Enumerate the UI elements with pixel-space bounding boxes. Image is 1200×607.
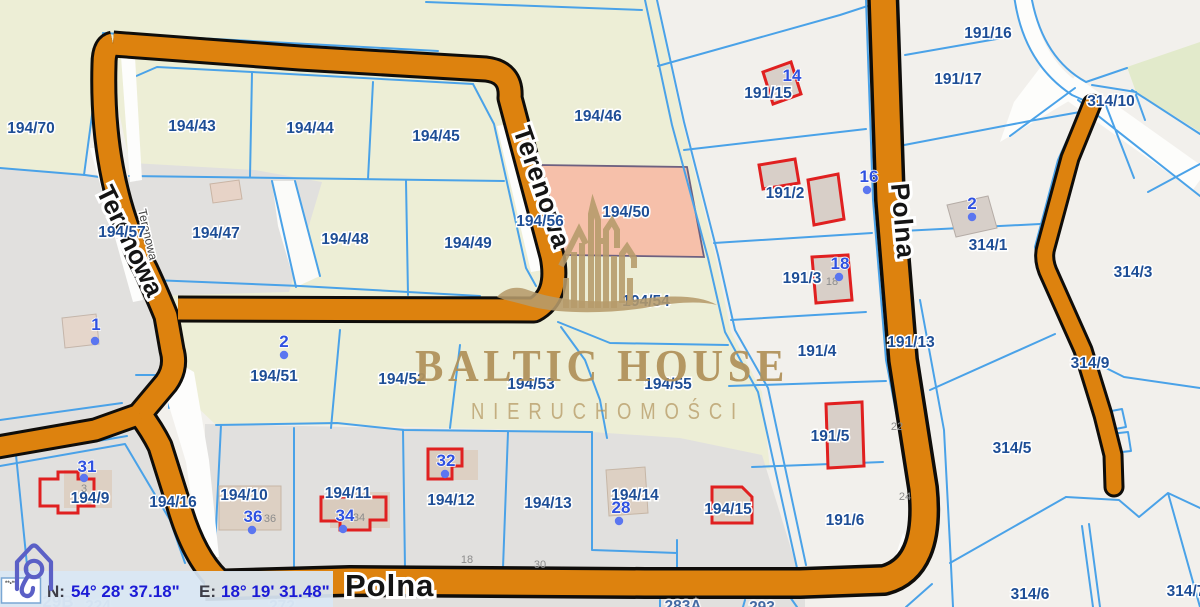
- svg-text:194/46: 194/46: [574, 108, 622, 125]
- svg-text:194/44: 194/44: [286, 120, 334, 137]
- svg-text:194/45: 194/45: [412, 128, 460, 145]
- svg-text:16: 16: [860, 167, 879, 186]
- svg-text:18: 18: [461, 554, 473, 566]
- svg-text:194/9: 194/9: [71, 490, 110, 507]
- svg-text:314/10: 314/10: [1087, 93, 1134, 110]
- svg-text:28: 28: [612, 498, 631, 517]
- svg-text:14: 14: [783, 66, 802, 85]
- svg-text:194/13: 194/13: [524, 495, 572, 512]
- svg-text:191/16: 191/16: [964, 25, 1012, 42]
- svg-text:54° 28' 37.18": 54° 28' 37.18": [71, 582, 180, 601]
- svg-text:2: 2: [967, 194, 976, 213]
- svg-text:194/57: 194/57: [98, 224, 145, 241]
- svg-text:194/51: 194/51: [250, 368, 298, 385]
- svg-text:22: 22: [891, 421, 903, 433]
- svg-text:283A: 283A: [664, 598, 701, 607]
- svg-text:24: 24: [899, 491, 911, 503]
- svg-text:194/12: 194/12: [427, 492, 474, 509]
- svg-text:314/1: 314/1: [969, 237, 1008, 254]
- svg-text:BALTIC HOUSE: BALTIC HOUSE: [415, 340, 789, 391]
- svg-text:191/17: 191/17: [934, 71, 981, 88]
- svg-text:194/50: 194/50: [602, 204, 649, 221]
- svg-text:314/5: 314/5: [993, 440, 1032, 457]
- svg-text:194/10: 194/10: [220, 487, 267, 504]
- svg-text:NIERUCHOMOŚCI: NIERUCHOMOŚCI: [471, 397, 745, 424]
- svg-text:34: 34: [353, 512, 365, 524]
- svg-text:314/7: 314/7: [1167, 583, 1200, 600]
- svg-text:194/16: 194/16: [149, 494, 197, 511]
- svg-text:32: 32: [437, 451, 456, 470]
- svg-text:Polna: Polna: [345, 568, 434, 603]
- svg-text:36: 36: [244, 507, 263, 526]
- svg-text:191/2: 191/2: [766, 185, 805, 202]
- svg-text:314/3: 314/3: [1114, 264, 1153, 281]
- svg-text:18° 19' 31.48": 18° 19' 31.48": [221, 582, 330, 601]
- svg-text:18: 18: [831, 254, 850, 273]
- svg-text:314/6: 314/6: [1011, 586, 1050, 603]
- svg-text:1: 1: [91, 315, 100, 334]
- svg-text:191/3: 191/3: [783, 270, 822, 287]
- svg-text:194/43: 194/43: [168, 118, 216, 135]
- svg-text:E:: E:: [199, 582, 216, 601]
- svg-text:194/15: 194/15: [704, 501, 752, 518]
- svg-text:36: 36: [264, 513, 276, 525]
- svg-text:3: 3: [81, 483, 87, 495]
- svg-text:191/5: 191/5: [811, 428, 850, 445]
- svg-text:194/56: 194/56: [516, 213, 564, 230]
- svg-text:314/9: 314/9: [1071, 355, 1110, 372]
- svg-text:34: 34: [336, 506, 355, 525]
- svg-text:191/13: 191/13: [887, 334, 935, 351]
- svg-text:191/4: 191/4: [798, 343, 837, 360]
- svg-text:2: 2: [279, 332, 288, 351]
- svg-text:30: 30: [534, 559, 546, 571]
- svg-text:194/11: 194/11: [325, 485, 372, 502]
- svg-text:31: 31: [78, 457, 97, 476]
- svg-text:194/49: 194/49: [444, 235, 492, 252]
- svg-text:293: 293: [749, 599, 775, 607]
- svg-text:194/70: 194/70: [7, 120, 54, 137]
- svg-text:194/47: 194/47: [192, 225, 239, 242]
- svg-text:191/15: 191/15: [744, 85, 792, 102]
- svg-text:191/6: 191/6: [826, 512, 865, 529]
- svg-text:194/48: 194/48: [321, 231, 369, 248]
